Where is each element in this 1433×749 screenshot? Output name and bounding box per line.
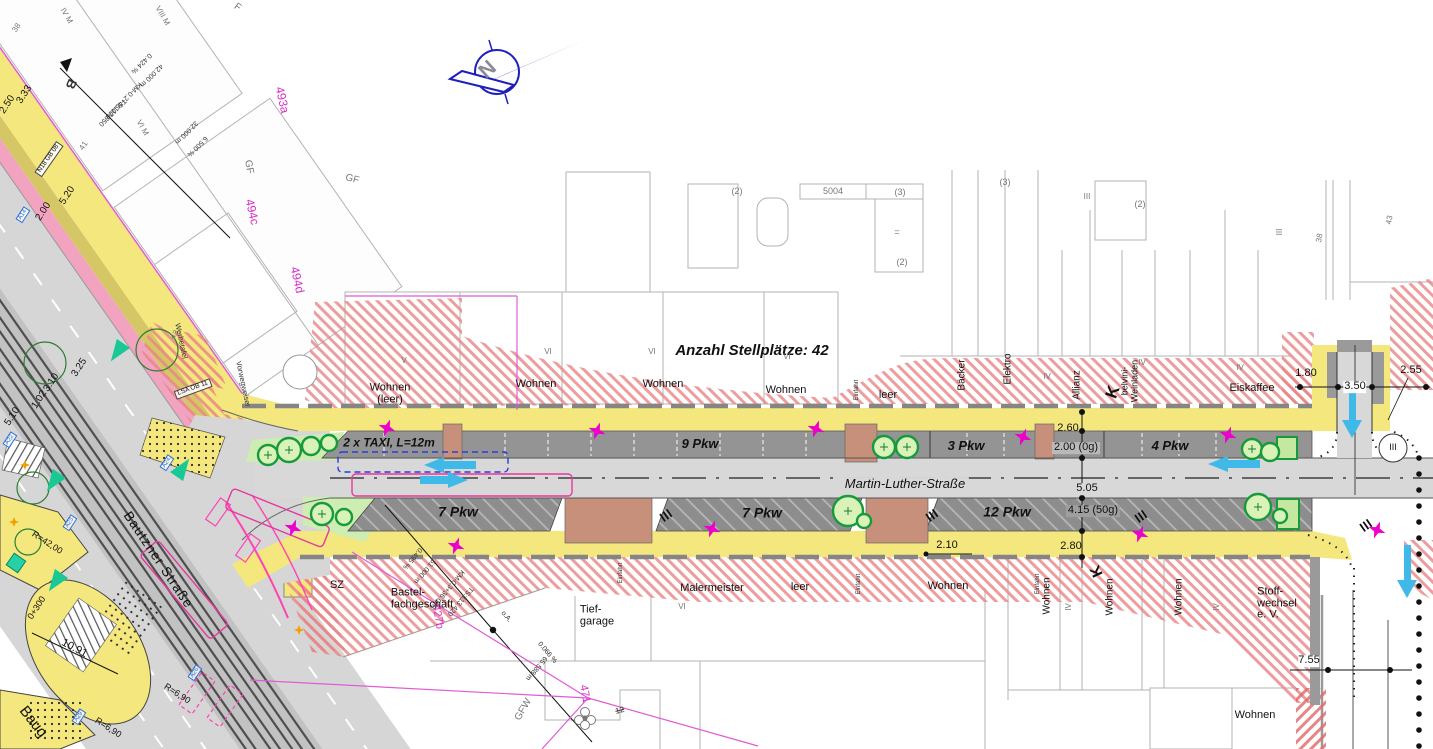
parcel-5004: 5004	[823, 187, 843, 197]
bay-12pkw: 12 Pkw	[983, 505, 1030, 520]
bld-wohnen-v2: Wohnen	[1106, 578, 1117, 615]
bld-wohnen-b1: Wohnen	[928, 581, 969, 593]
parcel-eq: =	[894, 228, 899, 238]
bay-9pkw: 9 Pkw	[682, 437, 719, 451]
storey-iii-1: III	[1084, 193, 1091, 201]
house-43-a: 43	[1385, 215, 1395, 225]
bld-belvini: belvini- Weinladen	[1120, 360, 1139, 402]
storey-iv-e: IV	[1236, 364, 1244, 372]
storey-vi-2: VI	[648, 348, 656, 356]
storey-vi-a: VI	[678, 603, 686, 611]
parcel-2-b: (2)	[897, 258, 908, 268]
bld-wohnen-2: Wohnen	[643, 379, 684, 391]
survey-gf1: GF	[242, 159, 255, 175]
bld-wohnen-1: Wohnen	[516, 379, 557, 391]
bay-3pkw: 3 Pkw	[948, 439, 985, 453]
street-label-main: Martin-Luther-Straße	[841, 477, 969, 491]
parcel-471: 471	[577, 684, 592, 704]
dim-1-80: 1.80	[1295, 368, 1316, 380]
dim-7-55: 7.55	[1298, 655, 1319, 667]
dim-2-60: 2.60	[1057, 423, 1078, 435]
bld-wohnen-v1: Wohnen	[1043, 577, 1054, 614]
bld-wohnen-b2: Wohnen	[1235, 710, 1276, 722]
bay-7pkw-a: 7 Pkw	[438, 505, 478, 520]
storey-vi-3: VI	[783, 353, 791, 361]
bld-wohnen-v3: Wohnen	[1175, 578, 1186, 615]
dim-4-15-50g: 4.15 (50g)	[1066, 505, 1120, 517]
dim-2-80: 2.80	[1060, 541, 1081, 553]
house-38-a: 38	[1315, 233, 1325, 243]
bld-malermeister: Malermeister	[680, 583, 744, 595]
dim-2-55: 2.55	[1400, 365, 1421, 377]
bld-elektro: Elektro	[1004, 353, 1015, 384]
parcel-2-c: (2)	[1135, 200, 1146, 210]
einfahrt-3: Einfahrt	[856, 574, 862, 595]
parcel-3-b: (3)	[1000, 178, 1011, 188]
parking-count-note: Anzahl Stellplätze: 42	[675, 343, 828, 359]
storey-iv-d: IV	[1138, 359, 1146, 367]
dim-3-50: 3.50	[1343, 381, 1366, 393]
storey-iii-2: III	[1274, 229, 1282, 236]
bld-stoffwechsel: Stoff- wechsel e. V.	[1257, 587, 1297, 622]
parcel-3-a: (3)	[895, 188, 906, 198]
bld-eiskaffee: Eiskaffee	[1229, 383, 1274, 395]
einfahrt-2: Einfahrt	[618, 563, 624, 584]
einfahrt-4: Einfahrt	[1035, 574, 1041, 595]
parcel-2-a: (2)	[732, 187, 743, 197]
bay-4pkw: 4 Pkw	[1152, 439, 1189, 453]
bld-leer-bottom: leer	[791, 582, 809, 594]
site-plan: Anzahl Stellplätze: 42 Martin-Luther-Str…	[0, 0, 1433, 749]
storey-vi-1: VI	[544, 348, 552, 356]
taxi-bay-label: 2 x TAXI, L=12m	[343, 437, 434, 450]
circle-storey-iii: III	[1389, 443, 1397, 453]
dim-5-05: 5.05	[1074, 483, 1099, 495]
storey-iv-b: IV	[1213, 603, 1221, 611]
bld-wohnen-3: Wohnen	[766, 385, 807, 397]
sign-structure-circle	[283, 355, 317, 389]
storey-iv-a: IV	[1065, 603, 1073, 611]
bay-7pkw-b: 7 Pkw	[742, 506, 782, 521]
dim-2-00-0g: 2.00 (0g)	[1052, 442, 1100, 454]
bld-tiefgarage: Tief- garage	[580, 604, 614, 627]
bld-baecker: Bäcker	[958, 359, 969, 390]
einfahrt-1: Einfahrt	[854, 380, 860, 401]
bld-wohnen-leer: Wohnen (leer)	[370, 382, 411, 405]
curb-wall	[1310, 557, 1320, 705]
bld-leer-top: leer	[879, 390, 897, 402]
storey-v-1: V	[401, 357, 406, 365]
parking-bays-south	[348, 498, 1312, 531]
plan-drawing	[0, 0, 1433, 749]
storey-iv-c: IV	[1043, 373, 1051, 381]
bld-allianz: Allianz	[1073, 370, 1084, 399]
dim-2-10: 2.10	[936, 540, 957, 552]
bld-sz: SZ	[330, 580, 344, 592]
